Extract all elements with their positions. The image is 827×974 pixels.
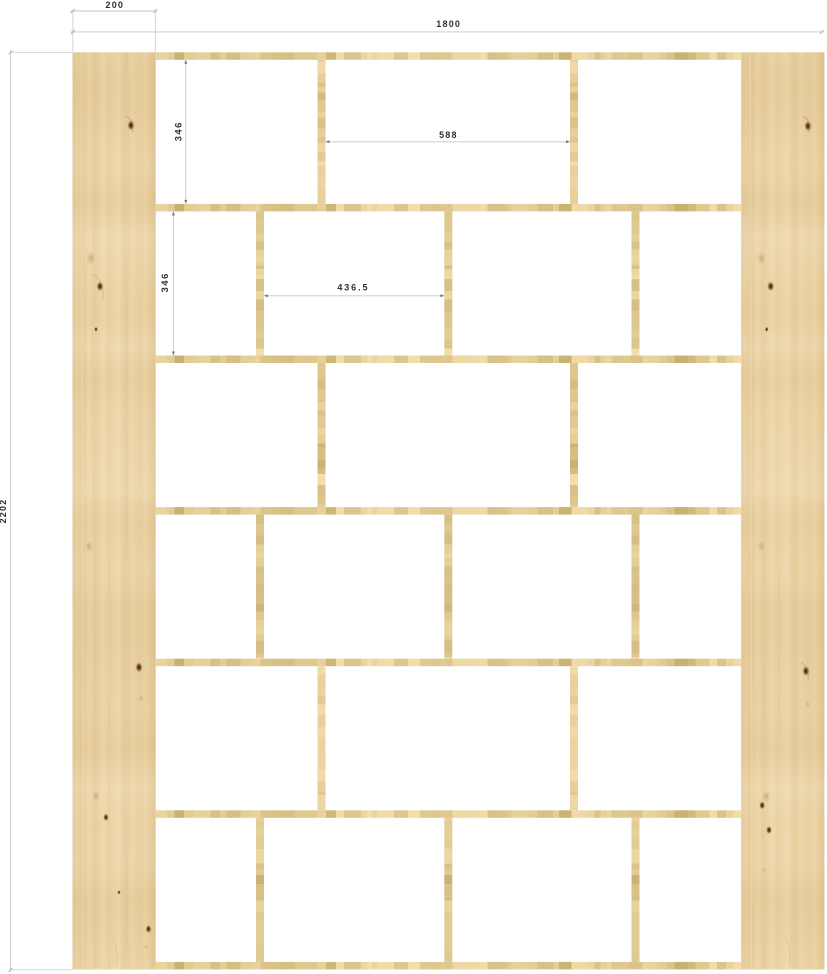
svg-text:200: 200	[105, 0, 124, 10]
svg-text:1800: 1800	[436, 19, 461, 29]
svg-text:588: 588	[439, 130, 458, 140]
svg-text:2202: 2202	[0, 499, 8, 524]
svg-text:346: 346	[160, 272, 171, 292]
svg-text:436.5: 436.5	[337, 282, 369, 292]
svg-text:346: 346	[174, 121, 185, 141]
